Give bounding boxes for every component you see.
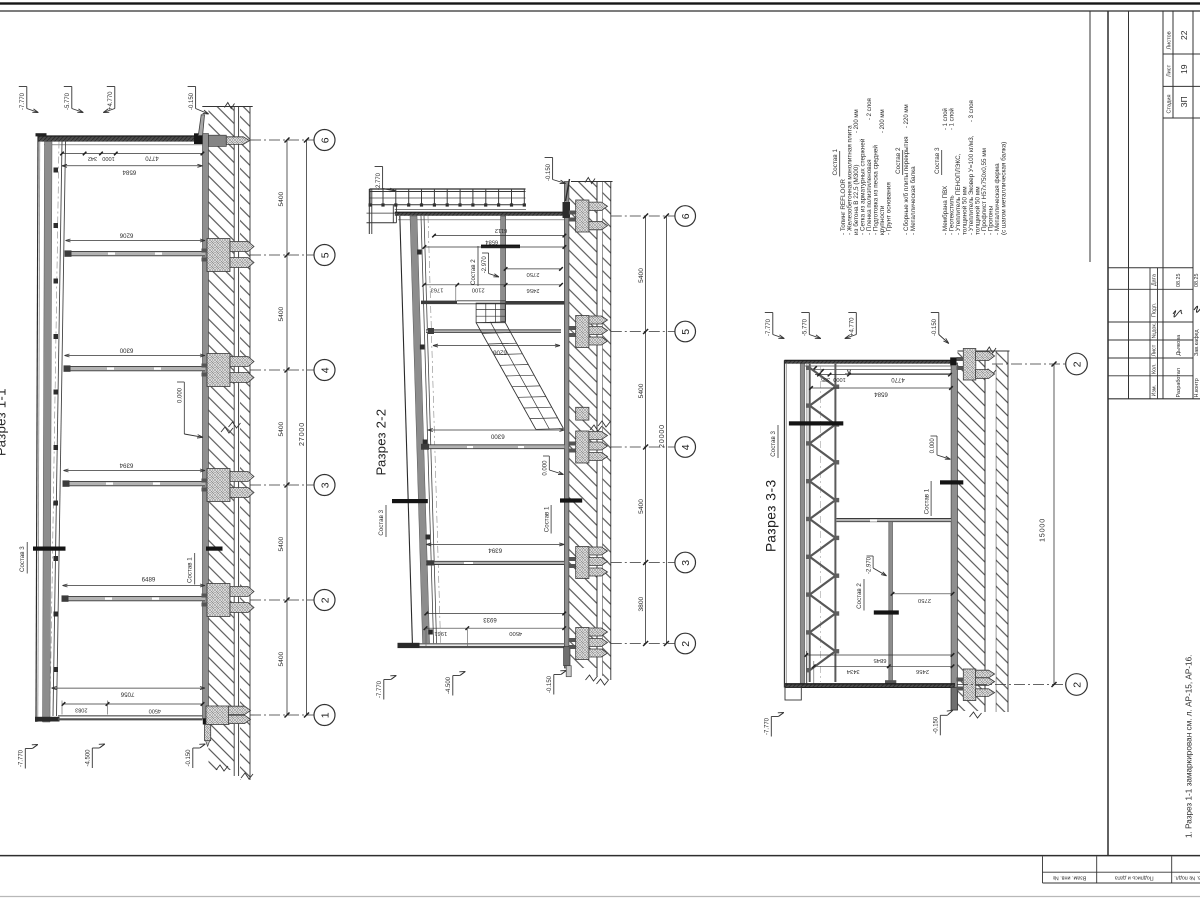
svg-text:0.000: 0.000 <box>543 460 549 476</box>
svg-text:- 200 мм: - 200 мм <box>880 109 886 133</box>
svg-text:2083: 2083 <box>75 707 87 713</box>
svg-text:4: 4 <box>319 367 331 373</box>
svg-text:-4.500: -4.500 <box>86 749 92 767</box>
svg-text:Зав.кафед: Зав.кафед <box>1194 329 1200 356</box>
svg-text:2: 2 <box>680 641 692 647</box>
svg-text:6112: 6112 <box>495 227 507 233</box>
svg-text:- 2 слоя: - 2 слоя <box>867 98 873 120</box>
svg-text:Состав 2: Состав 2 <box>895 147 902 174</box>
svg-text:2750: 2750 <box>918 597 931 603</box>
svg-text:1763: 1763 <box>431 286 444 292</box>
svg-text:-2.970: -2.970 <box>482 256 488 274</box>
svg-text:Инв. № подл.: Инв. № подл. <box>1174 874 1200 880</box>
svg-text:27000: 27000 <box>297 422 306 446</box>
svg-text:Состав 3: Состав 3 <box>770 430 777 456</box>
svg-text:Подп.: Подп. <box>1152 303 1158 317</box>
svg-text:Дьякова: Дьякова <box>1176 335 1182 356</box>
svg-text:- 1 слой: - 1 слой <box>942 108 949 130</box>
svg-text:2100: 2100 <box>472 286 485 292</box>
svg-text:Разработал: Разработал <box>1176 368 1182 397</box>
svg-text:+4.770: +4.770 <box>850 317 856 336</box>
svg-text:08.25: 08.25 <box>1176 274 1182 288</box>
svg-text:-5.770: -5.770 <box>803 318 809 336</box>
svg-text:6584: 6584 <box>122 168 136 175</box>
svg-text:20000: 20000 <box>657 424 666 448</box>
svg-text:Состав 1: Состав 1 <box>923 488 930 514</box>
svg-text:-7.770: -7.770 <box>19 749 25 767</box>
svg-text:2750: 2750 <box>527 271 540 277</box>
svg-text:Состав 3: Состав 3 <box>19 546 26 572</box>
svg-text:6: 6 <box>319 137 331 143</box>
svg-text:6206: 6206 <box>493 349 507 356</box>
svg-text:4: 4 <box>680 444 692 450</box>
svg-text:342: 342 <box>88 155 97 161</box>
svg-text:Н.контр: Н.контр <box>1194 378 1200 397</box>
svg-text:6300: 6300 <box>490 432 504 439</box>
svg-text:-0.150: -0.150 <box>547 675 553 693</box>
svg-text:6: 6 <box>680 213 692 219</box>
svg-text:Взам. инв. №: Взам. инв. № <box>1053 874 1087 880</box>
svg-text:-7.770: -7.770 <box>765 717 771 735</box>
svg-text:1: 1 <box>319 712 331 718</box>
svg-text:6845: 6845 <box>874 657 887 663</box>
svg-text:6584: 6584 <box>874 390 888 397</box>
svg-text:-2.970: -2.970 <box>866 556 872 574</box>
svg-text:3434: 3434 <box>846 668 860 674</box>
svg-text:Состав 3: Состав 3 <box>934 147 941 174</box>
svg-text:- Грунт основания: - Грунт основания <box>886 182 893 235</box>
svg-text:6206: 6206 <box>119 231 133 238</box>
svg-text:3: 3 <box>319 482 331 488</box>
svg-text:15000: 15000 <box>1038 518 1047 542</box>
svg-text:08.25: 08.25 <box>1194 274 1200 288</box>
svg-text:Разрез 3-3: Разрез 3-3 <box>764 479 779 552</box>
svg-text:Состав 1: Состав 1 <box>543 506 550 532</box>
svg-text:6489: 6489 <box>142 577 156 584</box>
svg-text:3: 3 <box>680 560 692 566</box>
svg-text:+4.770: +4.770 <box>108 91 114 110</box>
svg-text:ЗП: ЗП <box>1179 96 1189 107</box>
svg-text:19: 19 <box>1179 64 1189 74</box>
svg-text:7056: 7056 <box>120 691 134 698</box>
svg-text:-0.150: -0.150 <box>932 318 938 336</box>
svg-text:6584: 6584 <box>484 238 498 244</box>
svg-text:Дата: Дата <box>1152 274 1158 286</box>
svg-text:5400: 5400 <box>638 383 645 398</box>
svg-text:Состав 1: Состав 1 <box>187 557 194 583</box>
svg-text:4770: 4770 <box>891 376 905 382</box>
svg-text:385: 385 <box>821 376 830 382</box>
svg-text:Лист: Лист <box>1167 64 1173 77</box>
svg-text:-5.770: -5.770 <box>65 92 71 110</box>
svg-text:Разрез 1-1: Разрез 1-1 <box>0 388 9 456</box>
svg-text:1. Разрез 1-1 замаркирован см.: 1. Разрез 1-1 замаркирован см. л. АР-15,… <box>1185 655 1194 838</box>
svg-text:-7.770: -7.770 <box>377 680 383 698</box>
svg-text:2: 2 <box>1071 682 1083 688</box>
svg-text:1961: 1961 <box>434 630 447 636</box>
svg-text:Стадия: Стадия <box>1167 94 1173 113</box>
svg-text:-0.150: -0.150 <box>934 716 940 734</box>
svg-text:- 1 слой: - 1 слой <box>949 108 956 130</box>
svg-text:2456: 2456 <box>916 668 929 674</box>
svg-text:5400: 5400 <box>278 306 285 321</box>
svg-text:Кол.: Кол. <box>1152 363 1158 374</box>
svg-text:-0.150: -0.150 <box>546 163 552 181</box>
svg-text:- 3 слоя: - 3 слоя <box>969 100 975 122</box>
svg-text:-7.770: -7.770 <box>20 92 26 110</box>
svg-text:4770: 4770 <box>145 154 159 160</box>
svg-text:5400: 5400 <box>638 268 645 283</box>
svg-text:- Металлическая балка: - Металлическая балка <box>909 166 917 235</box>
svg-text:6300: 6300 <box>119 346 133 353</box>
svg-text:- 200 мм: - 200 мм <box>854 109 860 133</box>
svg-text:Лист: Лист <box>1152 344 1158 356</box>
svg-text:№док.: №док. <box>1152 323 1158 339</box>
svg-text:-4.500: -4.500 <box>446 676 452 694</box>
svg-text:4500: 4500 <box>149 708 161 714</box>
svg-text:5400: 5400 <box>278 191 285 206</box>
svg-text:Разрез 2-2: Разрез 2-2 <box>373 409 388 476</box>
svg-text:-0.150: -0.150 <box>186 749 192 767</box>
svg-text:Состав 1: Состав 1 <box>832 149 839 176</box>
svg-text:Подпись и дата: Подпись и дата <box>1115 874 1154 880</box>
svg-text:5400: 5400 <box>278 421 285 436</box>
svg-text:2: 2 <box>1071 361 1083 367</box>
svg-text:5: 5 <box>680 329 692 335</box>
svg-text:3800: 3800 <box>638 596 645 611</box>
svg-text:Изм.: Изм. <box>1152 385 1158 397</box>
svg-text:6394: 6394 <box>488 547 502 554</box>
svg-text:6394: 6394 <box>119 461 133 468</box>
svg-text:5400: 5400 <box>278 651 285 666</box>
svg-text:5400: 5400 <box>278 536 285 551</box>
svg-text:(с шагом металлическая балка): (с шагом металлическая балка) <box>1000 142 1008 235</box>
svg-text:-7.770: -7.770 <box>766 318 772 336</box>
svg-text:Состав 2: Состав 2 <box>470 259 477 285</box>
svg-text:Листов: Листов <box>1167 31 1173 49</box>
svg-text:5400: 5400 <box>638 499 645 514</box>
svg-text:Состав 3: Состав 3 <box>378 509 385 535</box>
svg-text:5: 5 <box>319 252 331 258</box>
svg-text:6933: 6933 <box>483 616 497 622</box>
svg-text:-2.770: -2.770 <box>376 172 382 190</box>
svg-text:2456: 2456 <box>527 287 540 293</box>
svg-text:Состав 2: Состав 2 <box>856 583 863 609</box>
svg-text:2: 2 <box>319 597 331 603</box>
svg-text:22: 22 <box>1179 30 1189 40</box>
svg-text:4500: 4500 <box>509 630 522 636</box>
svg-text:-0.150: -0.150 <box>189 92 195 110</box>
svg-text:1000: 1000 <box>102 155 114 161</box>
svg-text:- 220 мм: - 220 мм <box>904 104 910 128</box>
svg-text:1000: 1000 <box>833 376 845 382</box>
svg-text:0.000: 0.000 <box>930 438 936 454</box>
svg-text:0.000: 0.000 <box>178 387 184 403</box>
